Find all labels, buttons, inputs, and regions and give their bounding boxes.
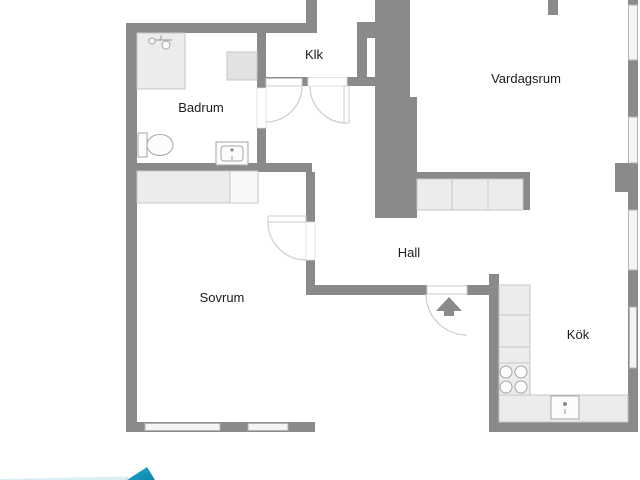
wall-top-stub-klk — [306, 0, 317, 23]
kitchen-sink — [551, 396, 579, 419]
wall-right-protrusion — [615, 163, 632, 192]
badrum-fixtures — [137, 33, 257, 165]
wall-column-lower — [375, 97, 417, 218]
wall-entrance-right — [467, 285, 492, 295]
window-kitchen — [630, 307, 637, 368]
window-vardagsrum-2 — [629, 117, 638, 163]
room-label-kok: Kök — [567, 327, 590, 342]
klk-door-arc — [310, 86, 347, 123]
wall-right-seg1 — [628, 0, 638, 5]
sovrum-door-leaf — [268, 216, 306, 222]
wall-kitchen-left — [489, 274, 499, 432]
klk-door-leaf — [344, 86, 349, 123]
sovrum-door-opening — [306, 222, 315, 260]
wall-left-outer — [126, 23, 137, 432]
kitchen-counter-left — [499, 285, 530, 395]
window-sovrum-1 — [145, 424, 220, 431]
room-label-sovrum: Sovrum — [200, 290, 245, 305]
sovrum-door-arc — [268, 222, 306, 260]
badrum-door-arc — [266, 86, 302, 122]
toilet — [138, 133, 173, 157]
hallway-wardrobe — [417, 179, 523, 210]
bathroom-cabinet — [227, 52, 257, 80]
wall-sovrum-right-upper — [306, 172, 315, 222]
wall-wardrobe-back — [410, 172, 530, 179]
wall-kitchen-bottom — [489, 422, 638, 432]
klk-door-opening — [308, 78, 347, 87]
room-label-vardagsrum: Vardagsrum — [491, 71, 561, 86]
walls — [126, 0, 638, 432]
window-vardagsrum-1 — [629, 5, 638, 60]
logo-strip — [0, 477, 128, 480]
logo-triangle-icon — [127, 467, 155, 480]
wall-top-stub-vardagsrum — [548, 0, 558, 15]
wall-wardrobe-cap — [523, 172, 530, 210]
wall-stub-klk-column — [357, 22, 375, 38]
sovrum-fixtures — [137, 171, 258, 203]
wall-right-seg2 — [628, 60, 638, 117]
floor-plan-svg: Badrum Klk Vardagsrum Hall Sovrum Kök — [0, 0, 640, 480]
entrance-door-leaf — [427, 286, 467, 294]
entrance-arrow-icon — [436, 297, 462, 311]
wall-column-upper — [375, 0, 410, 97]
room-label-klk: Klk — [305, 47, 324, 62]
window-vardagsrum-3 — [629, 210, 638, 270]
vardagsrum-fixtures — [417, 179, 523, 210]
shower — [137, 33, 185, 89]
window-sovrum-2 — [248, 424, 288, 431]
floor-plan-page: Badrum Klk Vardagsrum Hall Sovrum Kök — [0, 0, 640, 480]
bathroom-sink — [216, 142, 248, 165]
wall-hall-south — [306, 285, 427, 295]
room-label-hall: Hall — [398, 245, 421, 260]
badrum-door-opening — [257, 88, 266, 128]
realtor-logo — [0, 467, 155, 480]
badrum-door-leaf — [266, 79, 302, 87]
wall-top-badrum-klk — [126, 23, 317, 33]
entrance-arrow-stem — [444, 311, 454, 316]
room-label-badrum: Badrum — [178, 100, 224, 115]
kitchen-fixtures — [499, 285, 628, 422]
bedroom-wardrobe-section — [230, 171, 258, 203]
